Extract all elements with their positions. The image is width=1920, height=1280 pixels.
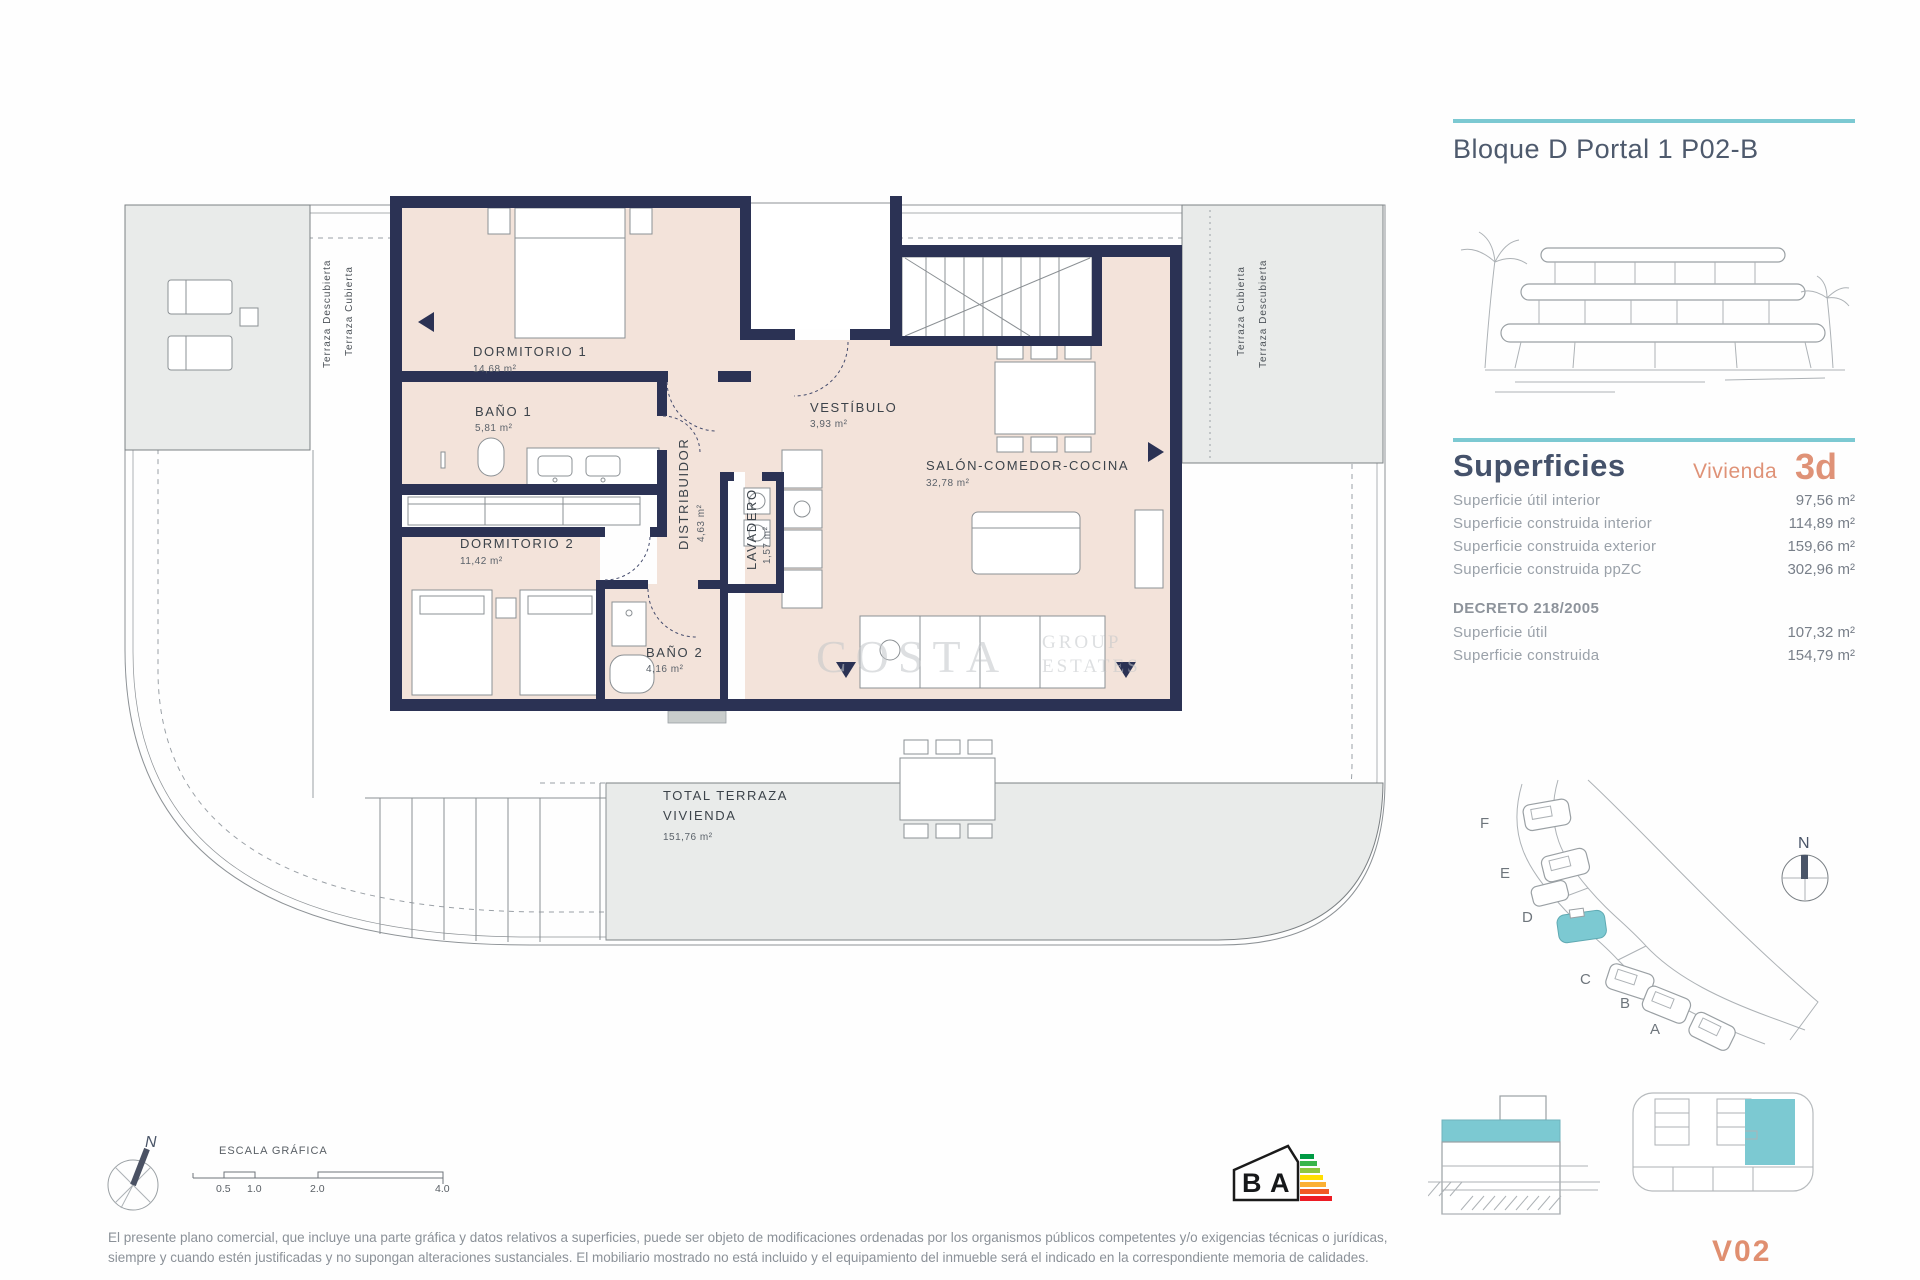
- superficie-label: Superficie útil interior: [1453, 492, 1600, 509]
- superficie-value: 302,96 m²: [1787, 561, 1855, 578]
- room-label-vestibulo: VESTÍBULO: [810, 400, 897, 415]
- room-area-lavadero: 1,57 m²: [762, 526, 773, 564]
- elevation-highlight-floor: [1442, 1120, 1560, 1142]
- scale-tick-20: 2.0: [310, 1183, 325, 1195]
- disclaimer-text: El presente plano comercial, que incluye…: [108, 1228, 1398, 1269]
- site-building-highlight: [1555, 905, 1607, 943]
- keyplan-highlight-unit: [1745, 1099, 1795, 1165]
- site-letter-d: D: [1522, 909, 1533, 926]
- elevation-sketch: [1428, 1096, 1600, 1214]
- superficie-value: 114,89 m²: [1789, 515, 1855, 532]
- superficies-row: Superficie construida interior 114,89 m²: [1453, 515, 1855, 538]
- watermark: COSTA GROUP ESTATES: [816, 631, 1141, 682]
- page-title: Bloque D Portal 1 P02-B: [1453, 134, 1759, 165]
- floor-plan: DORMITORIO 1 14,68 m² BAÑO 1 5,81 m² DIS…: [90, 150, 1420, 1110]
- vivienda-code: 3d: [1795, 446, 1837, 488]
- watermark-small1: GROUP: [1042, 632, 1121, 653]
- terraza-label-line2: VIVIENDA: [663, 808, 736, 823]
- superficie-label: Superficie construida exterior: [1453, 538, 1656, 555]
- room-area-dormitorio1: 14,68 m²: [473, 364, 517, 375]
- decreto-title: DECRETO 218/2005: [1453, 600, 1599, 617]
- watermark-big: COSTA: [816, 631, 1008, 682]
- room-label-bano2: BAÑO 2: [646, 645, 703, 660]
- scale-tick-05: 0.5: [216, 1183, 231, 1195]
- scale-tick-40: 4.0: [435, 1183, 450, 1195]
- exterior-stairs: [365, 783, 606, 942]
- unit-code: V02: [1712, 1235, 1771, 1269]
- terraza-area: 151,76 m²: [663, 832, 713, 843]
- room-area-dormitorio2: 11,42 m²: [460, 556, 503, 567]
- energy-rating-logo: B A: [1228, 1138, 1348, 1213]
- energy-bars: [1300, 1154, 1332, 1201]
- scale-tick-10: 1.0: [247, 1183, 262, 1195]
- terrace-label-right-outer: Terraza Descubierta: [1258, 260, 1269, 368]
- superficie-value: 107,32 m²: [1787, 624, 1855, 641]
- decreto-table: Superficie útil 107,32 m² Superficie con…: [1453, 624, 1855, 670]
- room-label-lavadero: LAVADERO: [744, 488, 759, 570]
- site-letter-a: A: [1650, 1021, 1661, 1038]
- compass-north-label: N: [145, 1135, 157, 1151]
- keyplan-sketch: [1633, 1093, 1813, 1191]
- site-north-label: N: [1798, 835, 1810, 852]
- room-label-dormitorio1: DORMITORIO 1: [473, 344, 587, 359]
- key-plan: [1625, 1083, 1835, 1223]
- energy-letter-b: B: [1242, 1168, 1262, 1198]
- superficies-title: Superficies: [1453, 448, 1626, 484]
- terrace-label-right-inner: Terraza Cubierta: [1236, 266, 1247, 356]
- room-label-bano1: BAÑO 1: [475, 404, 532, 419]
- site-buildings: [1522, 798, 1738, 1053]
- building-illustration: [1455, 200, 1865, 435]
- terrace-label-left-outer: Terraza Descubierta: [322, 260, 333, 368]
- room-label-dormitorio2: DORMITORIO 2: [460, 536, 574, 551]
- site-letter-b: B: [1620, 995, 1631, 1012]
- room-label-distribuidor: DISTRIBUIDOR: [676, 438, 691, 550]
- elevation-key: [1428, 1082, 1613, 1232]
- decreto-row: Superficie útil 107,32 m²: [1453, 624, 1855, 647]
- superficies-row: Superficie construida exterior 159,66 m²: [1453, 538, 1855, 561]
- site-compass: N: [1782, 835, 1828, 901]
- site-letter-e: E: [1500, 865, 1511, 882]
- room-area-salon: 32,78 m²: [926, 478, 970, 489]
- superficie-label: Superficie construida interior: [1453, 515, 1652, 532]
- superficie-value: 159,66 m²: [1787, 538, 1855, 555]
- room-area-bano1: 5,81 m²: [475, 423, 513, 434]
- superficies-row: Superficie útil interior 97,56 m²: [1453, 492, 1855, 515]
- room-area-bano2: 4,16 m²: [646, 664, 684, 675]
- superficie-value: 97,56 m²: [1796, 492, 1855, 509]
- superficie-label: Superficie construida ppZC: [1453, 561, 1642, 578]
- site-letter-c: C: [1580, 971, 1591, 988]
- vivienda-label: Vivienda: [1693, 460, 1777, 484]
- room-label-salon: SALÓN-COMEDOR-COCINA: [926, 458, 1129, 473]
- terrace-label-left-inner: Terraza Cubierta: [344, 266, 355, 356]
- scale-bar: ESCALA GRÁFICA 0.5 1.0 2.0 4.0: [185, 1138, 475, 1200]
- superficie-value: 154,79 m²: [1787, 647, 1855, 664]
- superficie-label: Superficie construida: [1453, 647, 1599, 664]
- void-area: [751, 202, 890, 329]
- building-sketch: [1461, 232, 1849, 392]
- room-area-vestibulo: 3,93 m²: [810, 419, 848, 430]
- scale-title: ESCALA GRÁFICA: [219, 1144, 328, 1157]
- superficies-accent-rule: [1453, 438, 1855, 442]
- superficies-row: Superficie construida ppZC 302,96 m²: [1453, 561, 1855, 584]
- decreto-row: Superficie construida 154,79 m²: [1453, 647, 1855, 670]
- superficie-label: Superficie útil: [1453, 624, 1548, 641]
- energy-letter-a: A: [1270, 1168, 1290, 1198]
- room-area-distribuidor: 4,63 m²: [696, 504, 707, 542]
- watermark-small2: ESTATES: [1042, 656, 1141, 677]
- stairs: [902, 257, 1092, 337]
- plan-compass: N: [95, 1135, 185, 1230]
- superficies-table: Superficie útil interior 97,56 m² Superf…: [1453, 492, 1855, 584]
- terraza-label-line1: TOTAL TERRAZA: [663, 788, 788, 803]
- site-plan: F E D C B A N: [1460, 778, 1900, 1070]
- header-accent-rule: [1453, 119, 1855, 123]
- site-letter-f: F: [1480, 815, 1490, 832]
